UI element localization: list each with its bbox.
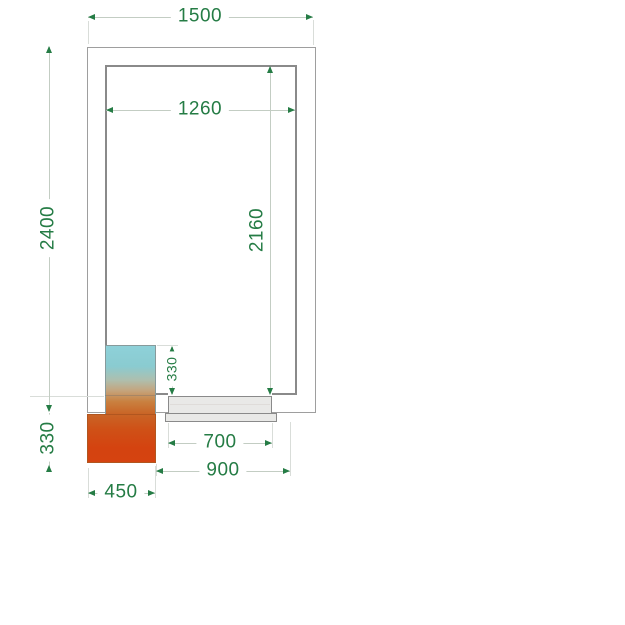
dim-outer-protrusion-arrow-bottom bbox=[46, 465, 52, 472]
dim-overall-depth-arrow-top bbox=[46, 46, 52, 53]
ext-line-overall-width-left bbox=[88, 21, 89, 44]
dim-inner-depth-label: 2160 bbox=[248, 201, 269, 259]
dim-door-overall-label: 900 bbox=[199, 461, 246, 482]
dim-inner-depth-line bbox=[270, 67, 271, 393]
drawing-canvas: 1500 1260 2400 330 2160 330 700 900 450 bbox=[0, 0, 625, 625]
dim-inner-protrusion-arrow-bottom bbox=[169, 388, 175, 395]
dim-inner-width-label: 1260 bbox=[171, 100, 229, 121]
dim-inner-width-arrow-left bbox=[106, 107, 113, 113]
dim-door-overall-arrow-right bbox=[283, 468, 290, 474]
dim-door-clear-arrow-right bbox=[265, 440, 272, 446]
dim-outer-protrusion-label: 330 bbox=[39, 414, 60, 461]
dim-overall-width-arrow-right bbox=[306, 14, 313, 20]
dim-unit-width-arrow-left bbox=[88, 490, 95, 496]
dim-unit-width-arrow-right bbox=[148, 490, 155, 496]
cooling-unit-indoor-section bbox=[105, 345, 156, 414]
door-leaf bbox=[168, 396, 272, 414]
ext-line-overall-width-right bbox=[313, 20, 314, 45]
dim-overall-depth-arrow-bottom bbox=[46, 405, 52, 412]
dim-door-clear-label: 700 bbox=[196, 433, 243, 454]
ext-line-inner-floor-level bbox=[30, 396, 104, 397]
dim-door-overall-arrow-left bbox=[156, 468, 163, 474]
dim-overall-depth-label: 2400 bbox=[39, 199, 60, 257]
dim-inner-protrusion-label: 330 bbox=[164, 352, 179, 387]
dim-inner-width-arrow-right bbox=[288, 107, 295, 113]
dim-inner-depth-arrow-bottom bbox=[267, 388, 273, 395]
dim-door-clear-arrow-left bbox=[168, 440, 175, 446]
door-sill bbox=[165, 413, 277, 422]
ext-line-door-overall-right bbox=[290, 422, 291, 476]
dim-overall-width-arrow-left bbox=[88, 14, 95, 20]
dim-inner-depth-arrow-top bbox=[267, 66, 273, 73]
dim-unit-width-label: 450 bbox=[97, 483, 144, 504]
door-leaf-detail-line bbox=[170, 404, 270, 405]
ext-line-door-clear-right bbox=[272, 423, 273, 448]
wall-inner-face-line bbox=[105, 395, 156, 396]
cooling-unit-outdoor-section bbox=[87, 414, 156, 463]
dim-overall-width-label: 1500 bbox=[171, 7, 229, 28]
